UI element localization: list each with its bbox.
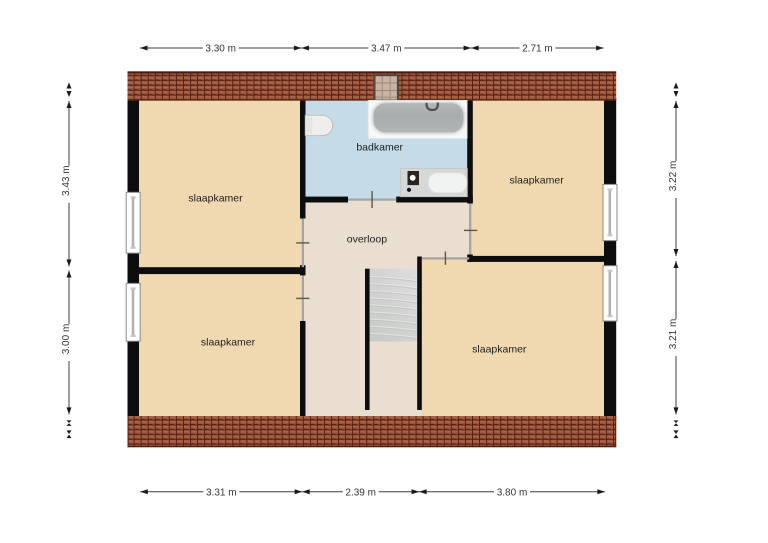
svg-text:3.00 m: 3.00 m bbox=[61, 324, 72, 355]
svg-text:slaapkamer: slaapkamer bbox=[509, 174, 564, 186]
svg-text:slaapkamer: slaapkamer bbox=[188, 193, 243, 205]
svg-text:overloop: overloop bbox=[347, 233, 387, 245]
svg-text:3.43 m: 3.43 m bbox=[61, 165, 72, 196]
svg-text:3.31 m: 3.31 m bbox=[206, 487, 237, 498]
svg-text:3.80 m: 3.80 m bbox=[497, 487, 528, 498]
svg-text:3.21 m: 3.21 m bbox=[668, 319, 679, 350]
svg-text:3.22 m: 3.22 m bbox=[668, 161, 679, 192]
svg-text:badkamer: badkamer bbox=[356, 142, 403, 154]
svg-text:3.47 m: 3.47 m bbox=[371, 44, 402, 55]
svg-text:3.30 m: 3.30 m bbox=[205, 44, 236, 55]
svg-text:slaapkamer: slaapkamer bbox=[472, 343, 527, 355]
svg-text:2.39 m: 2.39 m bbox=[345, 487, 376, 498]
svg-text:slaapkamer: slaapkamer bbox=[201, 336, 256, 348]
svg-text:2.71 m: 2.71 m bbox=[522, 44, 553, 55]
